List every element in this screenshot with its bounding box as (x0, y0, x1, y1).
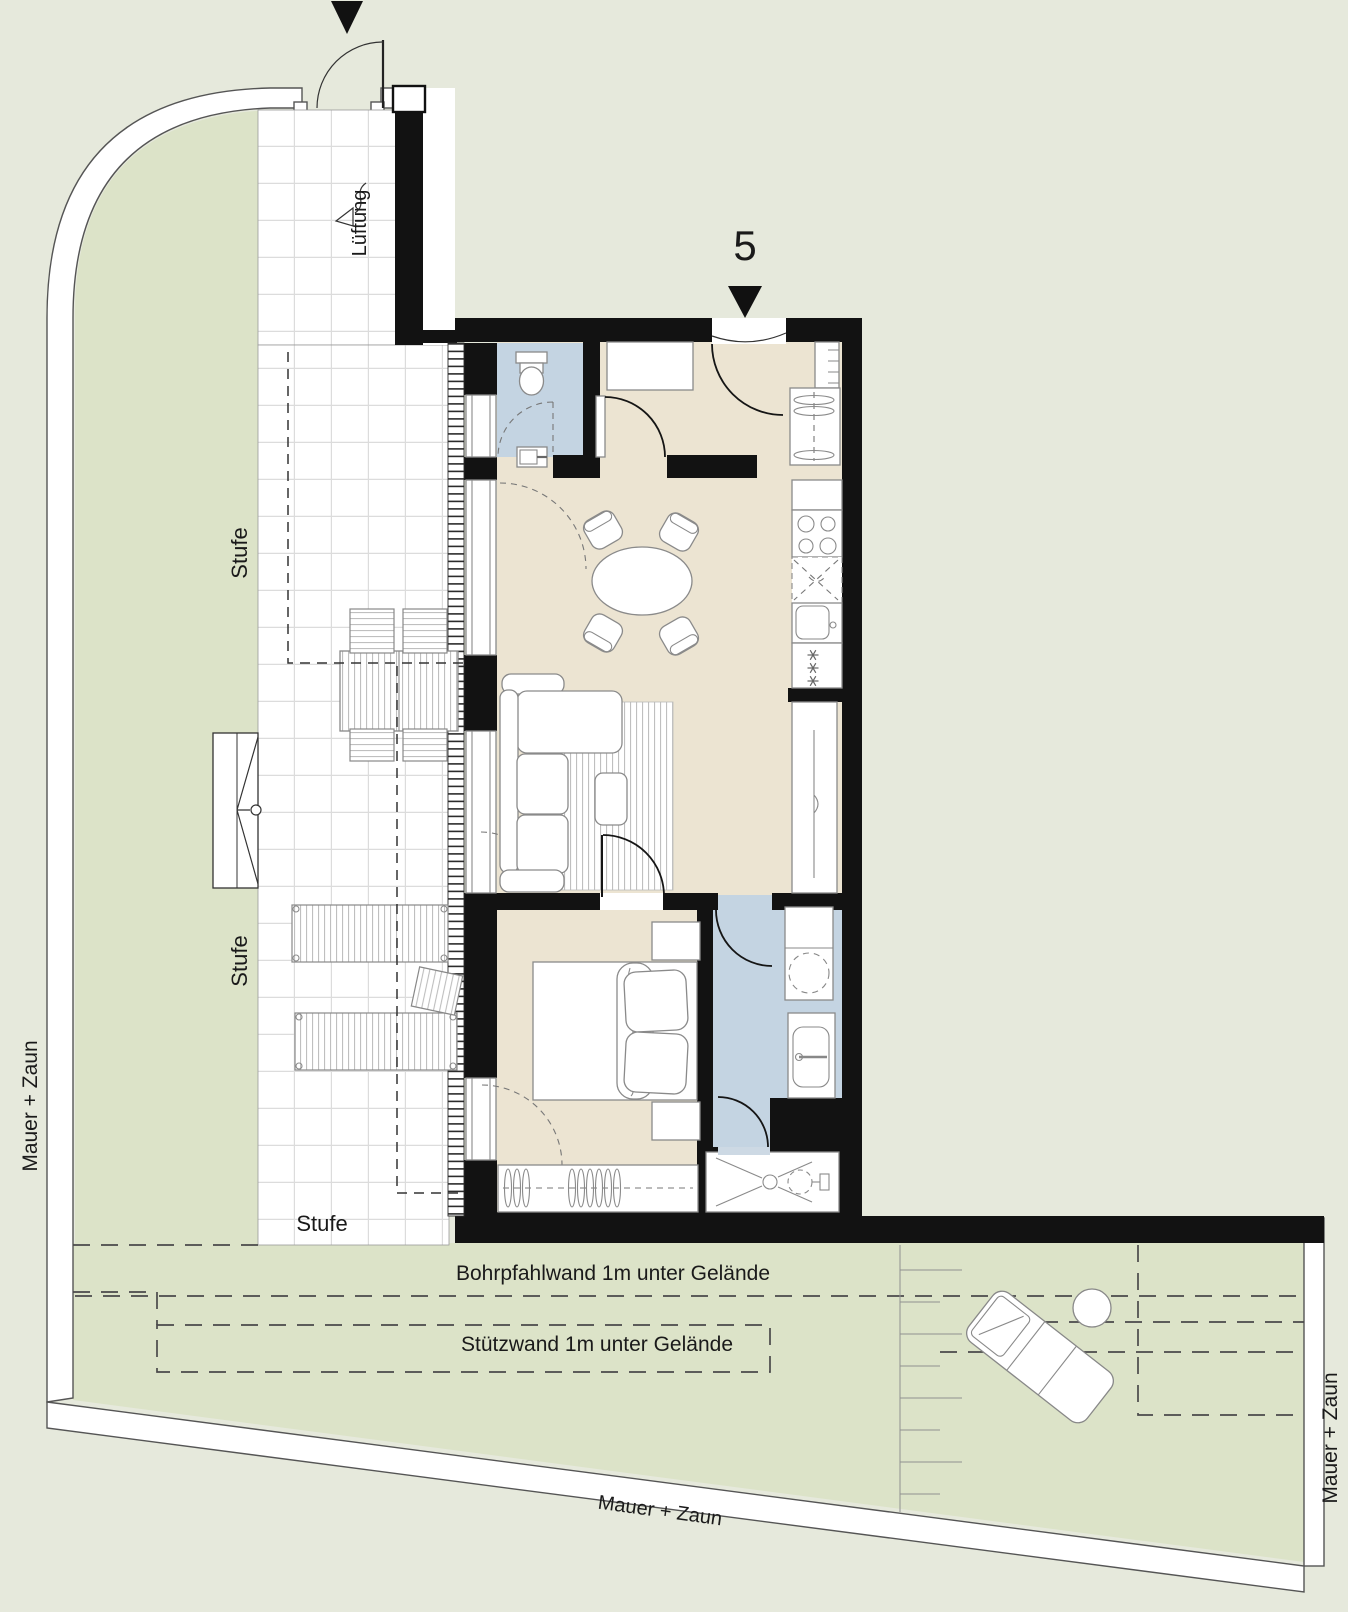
wall-end-cap (393, 86, 425, 112)
plan-drawing (0, 0, 1348, 1612)
kitchen-counter (792, 480, 842, 510)
window-living (466, 731, 496, 893)
label-bored-pile-wall: Bohrpfahlwand 1m unter Gelände (413, 1262, 813, 1286)
window-bedroom (466, 1078, 496, 1160)
nightstand (652, 1102, 700, 1140)
slat-screen (448, 343, 464, 1216)
side-table (411, 967, 462, 1015)
nightstand (652, 922, 700, 960)
sideboard (607, 342, 693, 390)
label-wall-fence-left: Mauer + Zaun (19, 1031, 43, 1181)
label-ventilation: Lüftung (349, 178, 375, 268)
label-step-lower: Stufe (227, 916, 253, 1006)
window-wc (466, 395, 496, 457)
shelf (815, 342, 839, 388)
label-retaining-wall: Stützwand 1m unter Gelände (397, 1333, 797, 1357)
pillow (623, 1031, 688, 1094)
label-unit-number: 5 (723, 222, 767, 270)
garden-round-table (1073, 1289, 1111, 1327)
outdoor-chair (403, 609, 447, 653)
floor-plan: Lüftung 5 Stufe Stufe Stufe Bohrpfahlwan… (0, 0, 1348, 1612)
outdoor-chair (403, 729, 447, 761)
kitchen (792, 480, 842, 893)
outdoor-chair (350, 609, 394, 653)
toilet-icon (516, 352, 547, 363)
south-wall (455, 1212, 862, 1243)
label-step-bottom: Stufe (277, 1211, 367, 1237)
sun-lounger (292, 905, 448, 962)
label-step-upper: Stufe (227, 508, 253, 598)
retaining-wall-band (862, 1216, 1324, 1243)
coffee-table (595, 773, 627, 825)
outdoor-chair (350, 729, 394, 761)
window-dining (466, 480, 496, 655)
awning-symbol (213, 733, 261, 888)
label-wall-fence-right: Mauer + Zaun (1319, 1363, 1343, 1513)
dining-table (592, 547, 692, 615)
pillow (623, 969, 688, 1032)
bath-sink-icon (788, 1013, 835, 1098)
north-walkway (423, 88, 455, 345)
shower (706, 1147, 839, 1212)
sun-lounger (295, 1013, 457, 1070)
